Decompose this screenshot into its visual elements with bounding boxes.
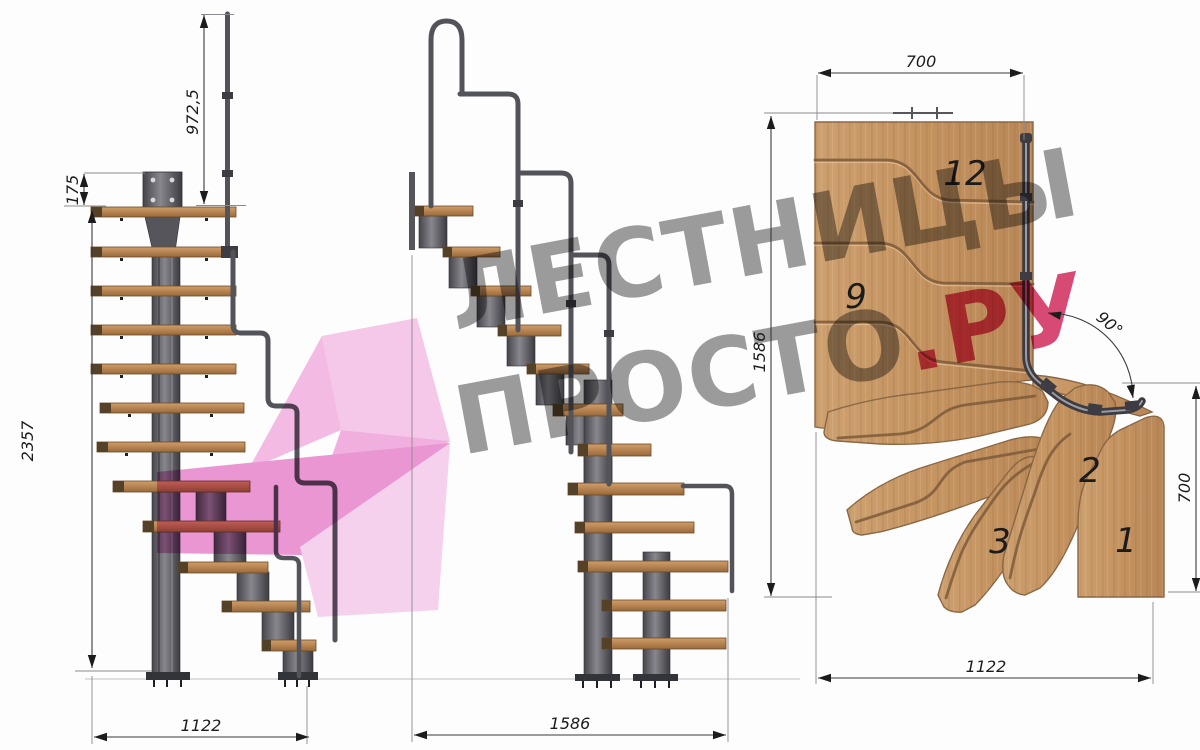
plan-fan-treads — [824, 382, 1164, 612]
side-mounting-plate — [143, 172, 182, 209]
dim-side-plate-offset: 175 — [63, 173, 145, 206]
side-anchor-bolts — [153, 680, 310, 687]
dim-side-total-width: 1122 — [92, 676, 309, 744]
svg-text:1122: 1122 — [181, 716, 222, 735]
plan-step-1: 1 — [1115, 521, 1137, 561]
side-column-base — [146, 672, 190, 680]
svg-text:700: 700 — [906, 52, 937, 71]
svg-text:1122: 1122 — [966, 657, 1007, 676]
plan-top-bracket — [893, 107, 953, 119]
svg-text:700: 700 — [1175, 473, 1194, 504]
svg-text:90°: 90° — [1093, 307, 1127, 340]
dim-side-rail-height: 972,5 — [183, 15, 246, 206]
dim-side-total-height: 2357 — [18, 210, 152, 671]
svg-text:1586: 1586 — [550, 714, 591, 733]
svg-text:1586: 1586 — [750, 332, 769, 373]
plan-step-2: 2 — [1079, 451, 1101, 491]
plan-step-3: 3 — [989, 522, 1011, 562]
side-view — [91, 14, 335, 687]
staircase-drawing: 12 9 3 2 1 ЛЕСТНИЦЫ ПРОСТО.РУ — [0, 0, 1200, 750]
svg-text:175: 175 — [63, 175, 82, 206]
front-wall-plate — [409, 172, 415, 250]
front-anchor-bolts — [582, 681, 670, 688]
svg-text:972,5: 972,5 — [183, 89, 202, 135]
svg-text:2357: 2357 — [18, 420, 37, 462]
